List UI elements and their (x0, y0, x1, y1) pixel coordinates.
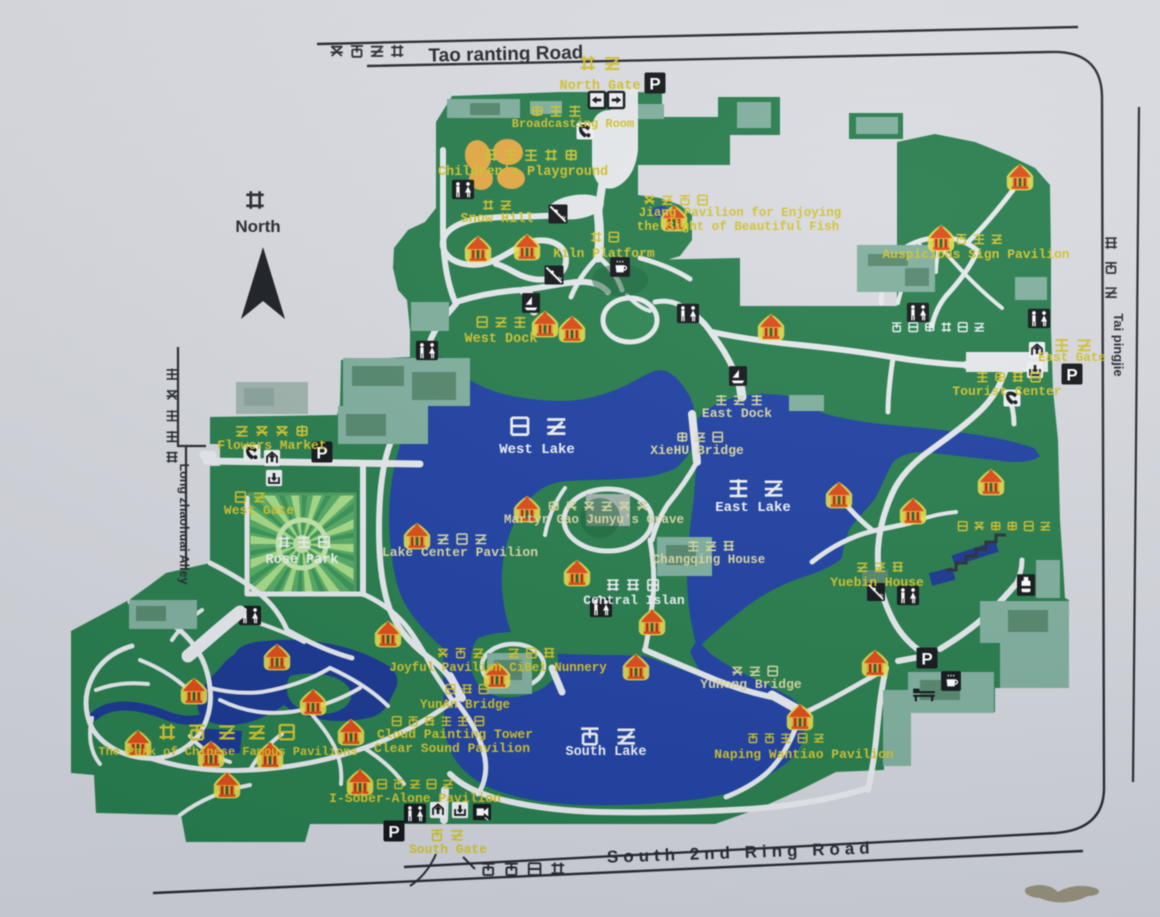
svg-text:Naping Wantiao Pavilion: Naping Wantiao Pavilion (714, 747, 894, 762)
svg-text:P: P (649, 75, 660, 94)
svg-text:Central Islan: Central Islan (583, 593, 685, 608)
svg-text:Rose Park: Rose Park (266, 553, 339, 568)
svg-text:Joyful Pavilion CiBei Nunnery: Joyful Pavilion CiBei Nunnery (389, 661, 607, 675)
svg-text:Tai pingjie: Tai pingjie (1111, 313, 1126, 376)
svg-text:The Park of Chinese Famous Pav: The Park of Chinese Famous Pavilions (98, 745, 357, 759)
svg-text:Changqing House: Changqing House (653, 553, 766, 567)
svg-text:South Lake: South Lake (565, 745, 646, 760)
svg-text:P: P (921, 650, 932, 669)
svg-text:South Gate: South Gate (409, 842, 487, 857)
svg-text:Yuebin House: Yuebin House (830, 575, 924, 590)
svg-text:Tourist Center: Tourist Center (952, 384, 1061, 399)
svg-text:East Dock: East Dock (702, 406, 772, 421)
svg-text:Kiln Platform: Kiln Platform (553, 246, 655, 261)
svg-text:YunAn Bridge: YunAn Bridge (420, 698, 510, 712)
svg-text:West Lake: West Lake (499, 442, 575, 458)
svg-text:the Sight of Beautiful Fish: the Sight of Beautiful Fish (637, 220, 840, 234)
svg-text:Snow Hill: Snow Hill (461, 212, 534, 227)
svg-text:East Gate: East Gate (1038, 351, 1106, 365)
svg-text:XieHU Bridge: XieHU Bridge (650, 443, 744, 458)
svg-text:Jiang Pavilion for Enjoying: Jiang Pavilion for Enjoying (639, 206, 842, 220)
svg-text:P: P (388, 823, 399, 842)
svg-text:Flowers Market: Flowers Market (217, 438, 326, 453)
svg-text:Auspicious Sign Pavilion: Auspicious Sign Pavilion (882, 247, 1069, 262)
svg-text:I-Sober-Alone Pavilion: I-Sober-Alone Pavilion (329, 791, 501, 806)
svg-text:West Dock: West Dock (465, 332, 538, 347)
svg-text:West Gate: West Gate (224, 503, 294, 518)
svg-text:Cloud Painting Tower: Cloud Painting Tower (377, 727, 533, 742)
svg-text:Children's Playground: Children's Playground (438, 165, 608, 180)
svg-text:East Lake: East Lake (715, 500, 791, 516)
svg-text:North Gate: North Gate (559, 79, 640, 94)
svg-text:Tao ranting Road: Tao ranting Road (428, 42, 583, 66)
svg-text:P: P (1066, 366, 1077, 385)
svg-text:Lake Center Pavilion: Lake Center Pavilion (382, 545, 538, 560)
svg-text:North: North (235, 217, 280, 236)
svg-text:YuHong Bridge: YuHong Bridge (700, 677, 802, 692)
svg-text:Long zhaohuai Alley: Long zhaohuai Alley (177, 463, 191, 584)
svg-text:Martyr Gao Junyu's Grave: Martyr Gao Junyu's Grave (504, 513, 684, 527)
svg-text:Clear Sound Pavilion: Clear Sound Pavilion (374, 741, 530, 756)
svg-text:Broadcasting Room: Broadcasting Room (512, 117, 634, 131)
